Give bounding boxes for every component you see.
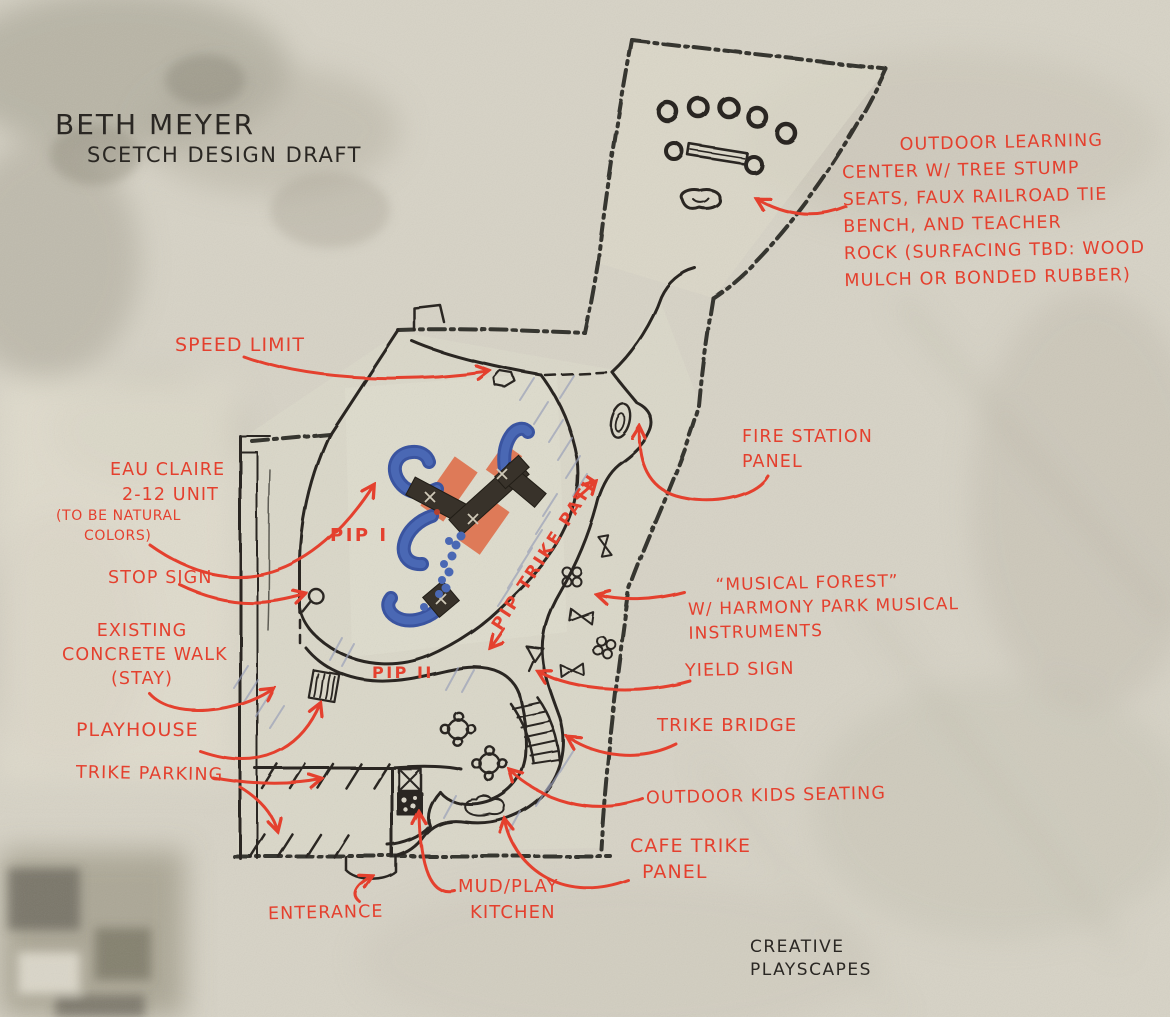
credit-creative-playscapes: CREATIVE PLAYSCAPES: [750, 936, 872, 982]
annotation-trike-parking: TRIKE PARKING: [76, 761, 224, 789]
annotation-trike-bridge: TRIKE BRIDGE: [657, 713, 797, 738]
annotation-existing-walk: EXISTING CONCRETE WALK (STAY): [62, 619, 222, 691]
label-pip-2: PIP II: [372, 660, 434, 685]
annotation-outdoor-learning: OUTDOOR LEARNING CENTER W/ TREE STUMP SE…: [841, 127, 1146, 295]
annotation-stop-sign: STOP SIGN: [108, 566, 213, 591]
sketch-plan-canvas: BETH MEYER SCETCH DESIGN DRAFT OUTDOOR L…: [0, 0, 1170, 1017]
annotation-fire-station: FIRE STATION PANEL: [742, 425, 873, 475]
label-pip-1: PIP I: [330, 523, 389, 548]
annotation-mud-play-kitchen: MUD/PLAY KITCHEN: [458, 874, 559, 926]
red-detail-mark: [434, 509, 440, 515]
annotation-outdoor-kids-seating: OUTDOOR KIDS SEATING: [646, 781, 887, 811]
annotation-yield-sign: YIELD SIGN: [685, 657, 795, 684]
title-line-2: SCETCH DESIGN DRAFT: [87, 143, 362, 168]
annotation-musical-forest: “MUSICAL FOREST” W/ HARMONY PARK MUSICAL…: [687, 568, 960, 646]
annotation-cafe-trike-panel: CAFE TRIKE PANEL: [630, 833, 751, 885]
annotation-enterance: ENTERANCE: [268, 900, 384, 927]
annotation-speed-limit: SPEED LIMIT: [175, 333, 305, 358]
annotation-playhouse: PLAYHOUSE: [76, 718, 199, 743]
annotation-eau-claire: EAU CLAIRE 2-12 UNIT: [110, 458, 225, 508]
page-title: BETH MEYER SCETCH DESIGN DRAFT: [55, 112, 362, 168]
title-line-1: BETH MEYER: [55, 112, 362, 137]
annotation-eau-claire-note: (TO BE NATURAL COLORS): [56, 506, 181, 546]
